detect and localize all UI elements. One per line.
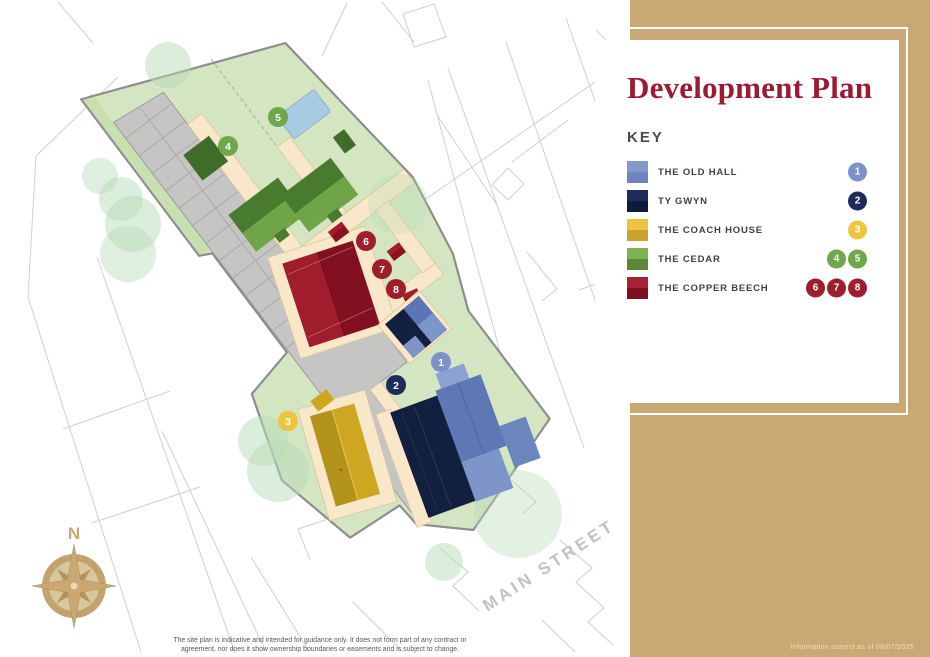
- map-marker-label: 2: [393, 380, 399, 392]
- map-marker-label: 7: [379, 264, 385, 276]
- info-correct-note: Information correct as of 08/07/2025: [791, 644, 914, 651]
- plot-number-badge: 2: [848, 192, 867, 211]
- legend-row-the-copper-beech: THE COPPER BEECH 6 7 8: [627, 277, 867, 299]
- map-marker-label: 6: [363, 236, 369, 248]
- plot-number-badge: 5: [848, 250, 867, 269]
- legend-swatch: [627, 248, 648, 270]
- legend-card: Development Plan KEY THE OLD HALL 1 TY G…: [595, 40, 899, 403]
- legend-label: TY GWYN: [658, 196, 708, 207]
- development-plan-page: 12345678 MAIN STREET N Development Plan …: [0, 0, 930, 657]
- map-marker-label: 3: [285, 416, 291, 428]
- plot-number-badge: 7: [827, 279, 846, 298]
- map-marker-label: 8: [393, 284, 399, 296]
- plot-number-badge: 6: [806, 279, 825, 298]
- disclaimer-text: The site plan is indicative and intended…: [140, 636, 500, 655]
- plot-number-badge: 8: [848, 279, 867, 298]
- compass-n-label: N: [68, 524, 80, 543]
- key-heading: KEY: [627, 129, 664, 146]
- plot-number-badge: 1: [848, 163, 867, 182]
- legend-label: THE OLD HALL: [658, 167, 737, 178]
- compass-rose: N: [32, 524, 116, 628]
- legend-swatch: [627, 219, 648, 241]
- legend-label: THE COACH HOUSE: [658, 225, 763, 236]
- legend-label: THE COPPER BEECH: [658, 283, 768, 294]
- plot-number-badge: 3: [848, 221, 867, 240]
- legend-swatch: [627, 190, 648, 212]
- map-marker-label: 1: [438, 357, 444, 369]
- legend: THE OLD HALL 1 TY GWYN 2 THE COACH HOUSE…: [627, 161, 867, 306]
- legend-row-ty-gwyn: TY GWYN 2: [627, 190, 867, 212]
- legend-row-the-cedar: THE CEDAR 4 5: [627, 248, 867, 270]
- disclaimer-line2: agreement, nor does it show ownership bo…: [140, 645, 500, 654]
- legend-row-the-coach-house: THE COACH HOUSE 3: [627, 219, 867, 241]
- map-marker-label: 4: [225, 141, 231, 153]
- map-marker-label: 5: [275, 112, 281, 124]
- legend-swatch: [627, 161, 648, 183]
- legend-swatch: [627, 277, 648, 299]
- legend-label: THE CEDAR: [658, 254, 721, 265]
- plot-number-badge: 4: [827, 250, 846, 269]
- disclaimer-line1: The site plan is indicative and intended…: [140, 636, 500, 645]
- page-title: Development Plan: [627, 70, 872, 106]
- legend-row-the-old-hall: THE OLD HALL 1: [627, 161, 867, 183]
